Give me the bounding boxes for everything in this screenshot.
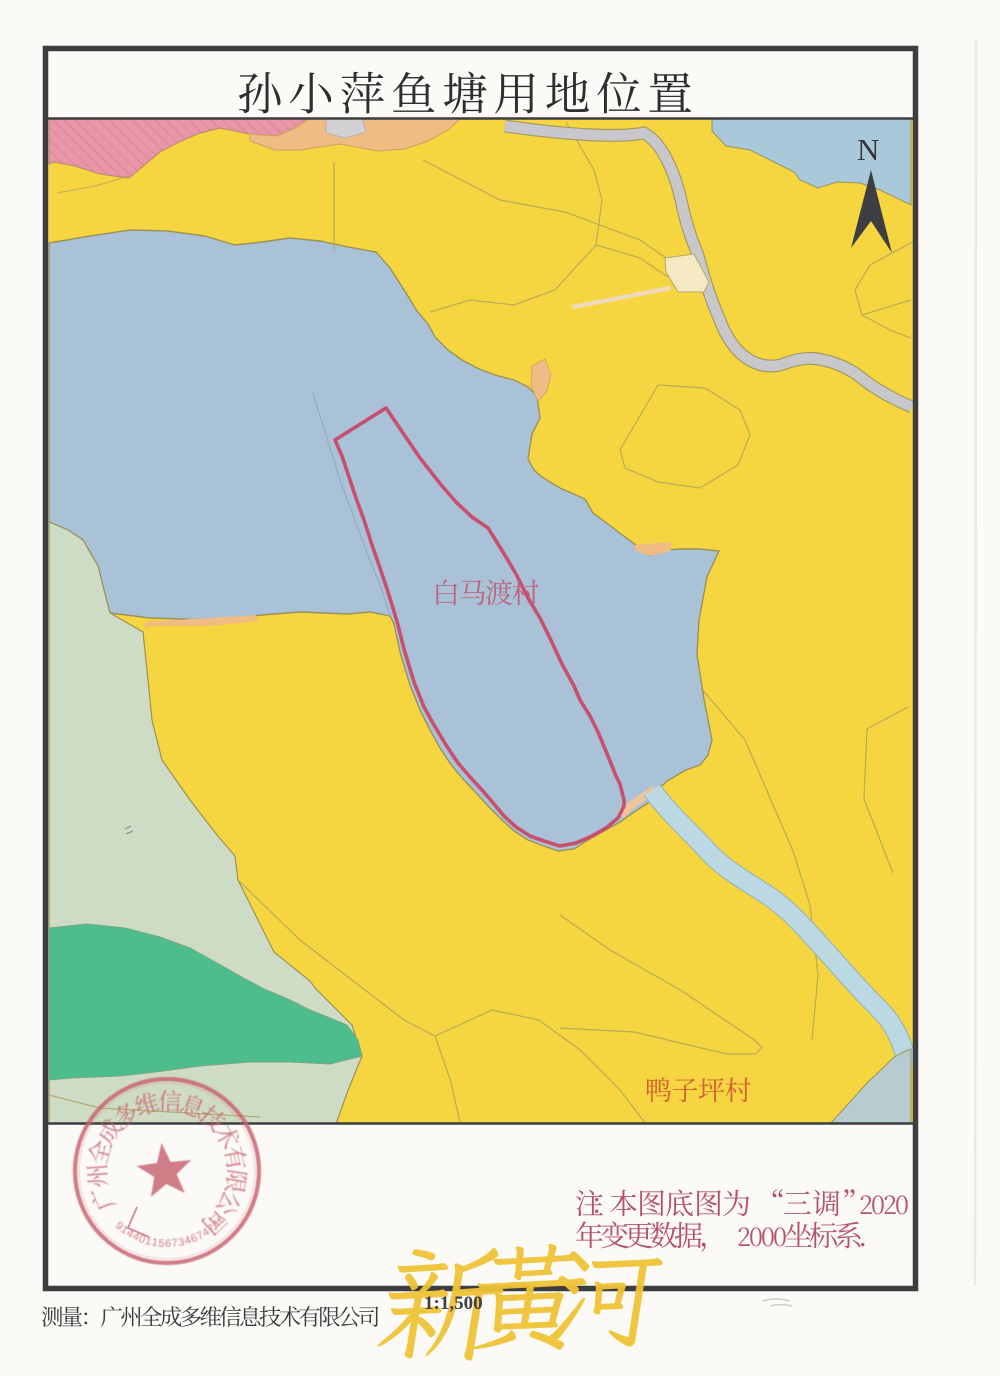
svg-text:1:1,500: 1:1,500 [424, 1293, 483, 1314]
svg-text:N: N [857, 132, 879, 167]
svg-text:5: 5 [158, 1238, 165, 1250]
